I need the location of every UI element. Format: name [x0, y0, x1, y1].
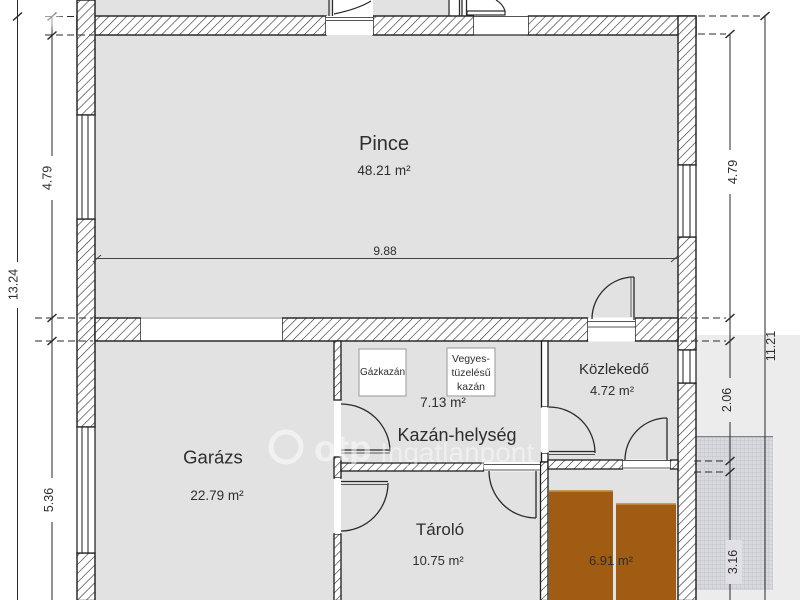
svg-text:kazán: kazán [457, 381, 485, 393]
svg-text:7.13 m²: 7.13 m² [420, 395, 466, 410]
svg-text:otp: otp [314, 428, 372, 469]
svg-text:Ingatlanpont: Ingatlanpont [380, 437, 534, 468]
svg-text:3.16: 3.16 [726, 550, 740, 574]
svg-text:22.79 m²: 22.79 m² [190, 488, 244, 503]
svg-text:11.21: 11.21 [764, 331, 778, 361]
svg-text:Gázkazán: Gázkazán [360, 367, 405, 378]
svg-text:Pince: Pince [359, 133, 409, 155]
svg-text:4.79: 4.79 [726, 160, 740, 184]
svg-text:13.24: 13.24 [7, 269, 21, 300]
svg-text:48.21 m²: 48.21 m² [357, 163, 411, 178]
svg-text:tüzelésű: tüzelésű [451, 367, 490, 379]
svg-text:6.91 m²: 6.91 m² [589, 553, 634, 568]
svg-text:4.79: 4.79 [41, 166, 55, 190]
svg-text:Tároló: Tároló [416, 520, 464, 539]
svg-text:9.88: 9.88 [373, 244, 397, 258]
svg-text:Közlekedő: Közlekedő [579, 361, 649, 378]
svg-text:2.06: 2.06 [720, 388, 734, 412]
svg-text:10.75 m²: 10.75 m² [412, 553, 464, 568]
svg-text:5.36: 5.36 [42, 488, 56, 512]
svg-text:Vegyes-: Vegyes- [452, 353, 490, 365]
svg-text:4.72 m²: 4.72 m² [590, 383, 635, 398]
svg-text:Garázs: Garázs [183, 447, 243, 468]
